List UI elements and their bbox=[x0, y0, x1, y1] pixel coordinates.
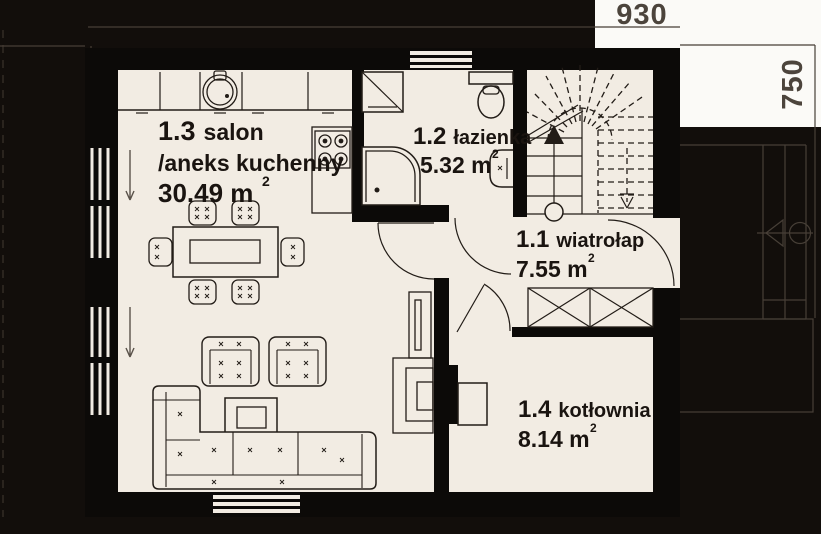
dining-table bbox=[173, 227, 278, 277]
dining-chair bbox=[189, 280, 216, 304]
room-area-wiatrolap: 7.55 m bbox=[516, 256, 588, 282]
wall-salon-east bbox=[434, 278, 449, 492]
wall-bathroom-south bbox=[352, 205, 449, 222]
room-label-wiatrolap: 1.1wiatrołap bbox=[516, 226, 644, 253]
dining-chair bbox=[232, 280, 259, 304]
dining-chair bbox=[281, 238, 304, 266]
room-label-lazienka: 1.2łazienka bbox=[413, 123, 532, 150]
room-area-kotlownia: 8.14 m bbox=[518, 426, 590, 452]
corner-shower bbox=[362, 147, 420, 205]
room-label-salon-line2: /aneks kuchenny bbox=[158, 150, 344, 176]
room-area-lazienka: 5.32 m bbox=[420, 152, 492, 178]
chimney-block bbox=[449, 365, 458, 424]
room-area-kotlownia-exp: 2 bbox=[590, 421, 597, 435]
washing-machine bbox=[362, 72, 403, 112]
entrance-niche bbox=[653, 218, 680, 288]
room-area-lazienka-exp: 2 bbox=[492, 147, 499, 161]
wall-top bbox=[85, 48, 680, 70]
armchair bbox=[269, 337, 326, 386]
room-area-salon-exp: 2 bbox=[262, 173, 270, 189]
floor-plan-page: 1.3salon /aneks kuchenny 30.49 m 2 1.2ła… bbox=[0, 0, 821, 534]
entrance-marker bbox=[680, 145, 813, 319]
wall-left bbox=[85, 48, 118, 517]
coffee-table bbox=[225, 398, 277, 437]
floor-plan-canvas: 1.3salon /aneks kuchenny 30.49 m 2 1.2ła… bbox=[0, 0, 821, 534]
dining-chair bbox=[149, 238, 172, 266]
wall-kotlownia-north bbox=[512, 327, 653, 337]
boiler bbox=[458, 383, 487, 425]
armchair bbox=[202, 337, 259, 386]
height-dimension-label: 750 bbox=[777, 58, 809, 109]
entrance-porch-outline bbox=[679, 319, 813, 412]
room-label-salon: 1.3salon bbox=[158, 116, 264, 146]
wall-bottom bbox=[85, 492, 680, 517]
room-label-kotlownia: 1.4kotłownia bbox=[518, 396, 651, 423]
room-area-wiatrolap-exp: 2 bbox=[588, 251, 595, 265]
window-bottom-salon bbox=[213, 495, 300, 513]
window-top-bathroom bbox=[410, 51, 472, 68]
width-dimension-label: 930 bbox=[616, 0, 667, 31]
room-area-salon: 30.49 m bbox=[158, 178, 253, 208]
stairs-newel-post bbox=[545, 203, 563, 221]
